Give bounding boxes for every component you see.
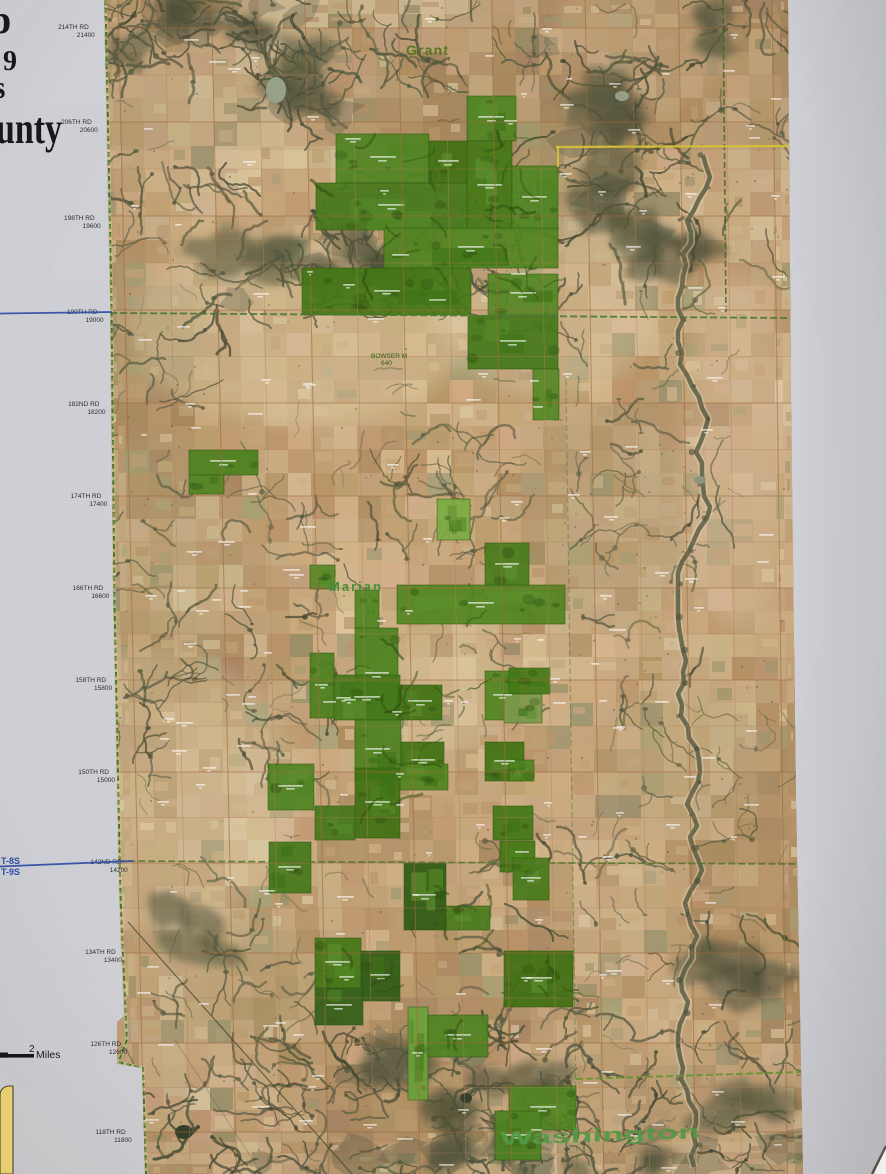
svg-text:134TH RD: 134TH RD bbox=[85, 949, 116, 956]
svg-text:17400: 17400 bbox=[89, 501, 107, 508]
svg-text:166TH RD: 166TH RD bbox=[73, 585, 104, 592]
svg-text:206TH RD: 206TH RD bbox=[61, 119, 92, 126]
svg-text:158TH RD: 158TH RD bbox=[75, 677, 106, 684]
svg-text:12600: 12600 bbox=[109, 1049, 127, 1056]
svg-text:18200: 18200 bbox=[87, 409, 105, 416]
svg-text:unty: unty bbox=[0, 104, 62, 153]
svg-text:198TH RD: 198TH RD bbox=[64, 215, 95, 222]
svg-text:118TH RD: 118TH RD bbox=[95, 1129, 126, 1136]
svg-text:20600: 20600 bbox=[80, 127, 98, 134]
svg-text:182ND RD: 182ND RD bbox=[68, 401, 100, 408]
svg-text:13400: 13400 bbox=[104, 957, 122, 964]
svg-text:Miles: Miles bbox=[36, 1049, 61, 1061]
svg-text:11800: 11800 bbox=[114, 1137, 132, 1144]
svg-text:s: s bbox=[0, 69, 5, 105]
svg-text:p: p bbox=[0, 0, 11, 42]
svg-text:150TH RD: 150TH RD bbox=[78, 769, 109, 776]
svg-text:174TH RD: 174TH RD bbox=[71, 493, 102, 500]
svg-text:T-9S: T-9S bbox=[1, 867, 20, 877]
svg-text:126TH RD: 126TH RD bbox=[90, 1041, 121, 1048]
svg-text:19000: 19000 bbox=[86, 317, 104, 324]
svg-text:21400: 21400 bbox=[77, 32, 95, 39]
svg-text:14200: 14200 bbox=[110, 867, 128, 874]
svg-text:2: 2 bbox=[29, 1044, 35, 1055]
svg-text:214TH RD: 214TH RD bbox=[58, 24, 89, 31]
svg-text:T-8S: T-8S bbox=[1, 856, 20, 866]
svg-text:15800: 15800 bbox=[94, 685, 112, 692]
svg-text:19600: 19600 bbox=[83, 223, 101, 230]
svg-text:15000: 15000 bbox=[97, 777, 115, 784]
svg-text:16600: 16600 bbox=[91, 593, 109, 600]
